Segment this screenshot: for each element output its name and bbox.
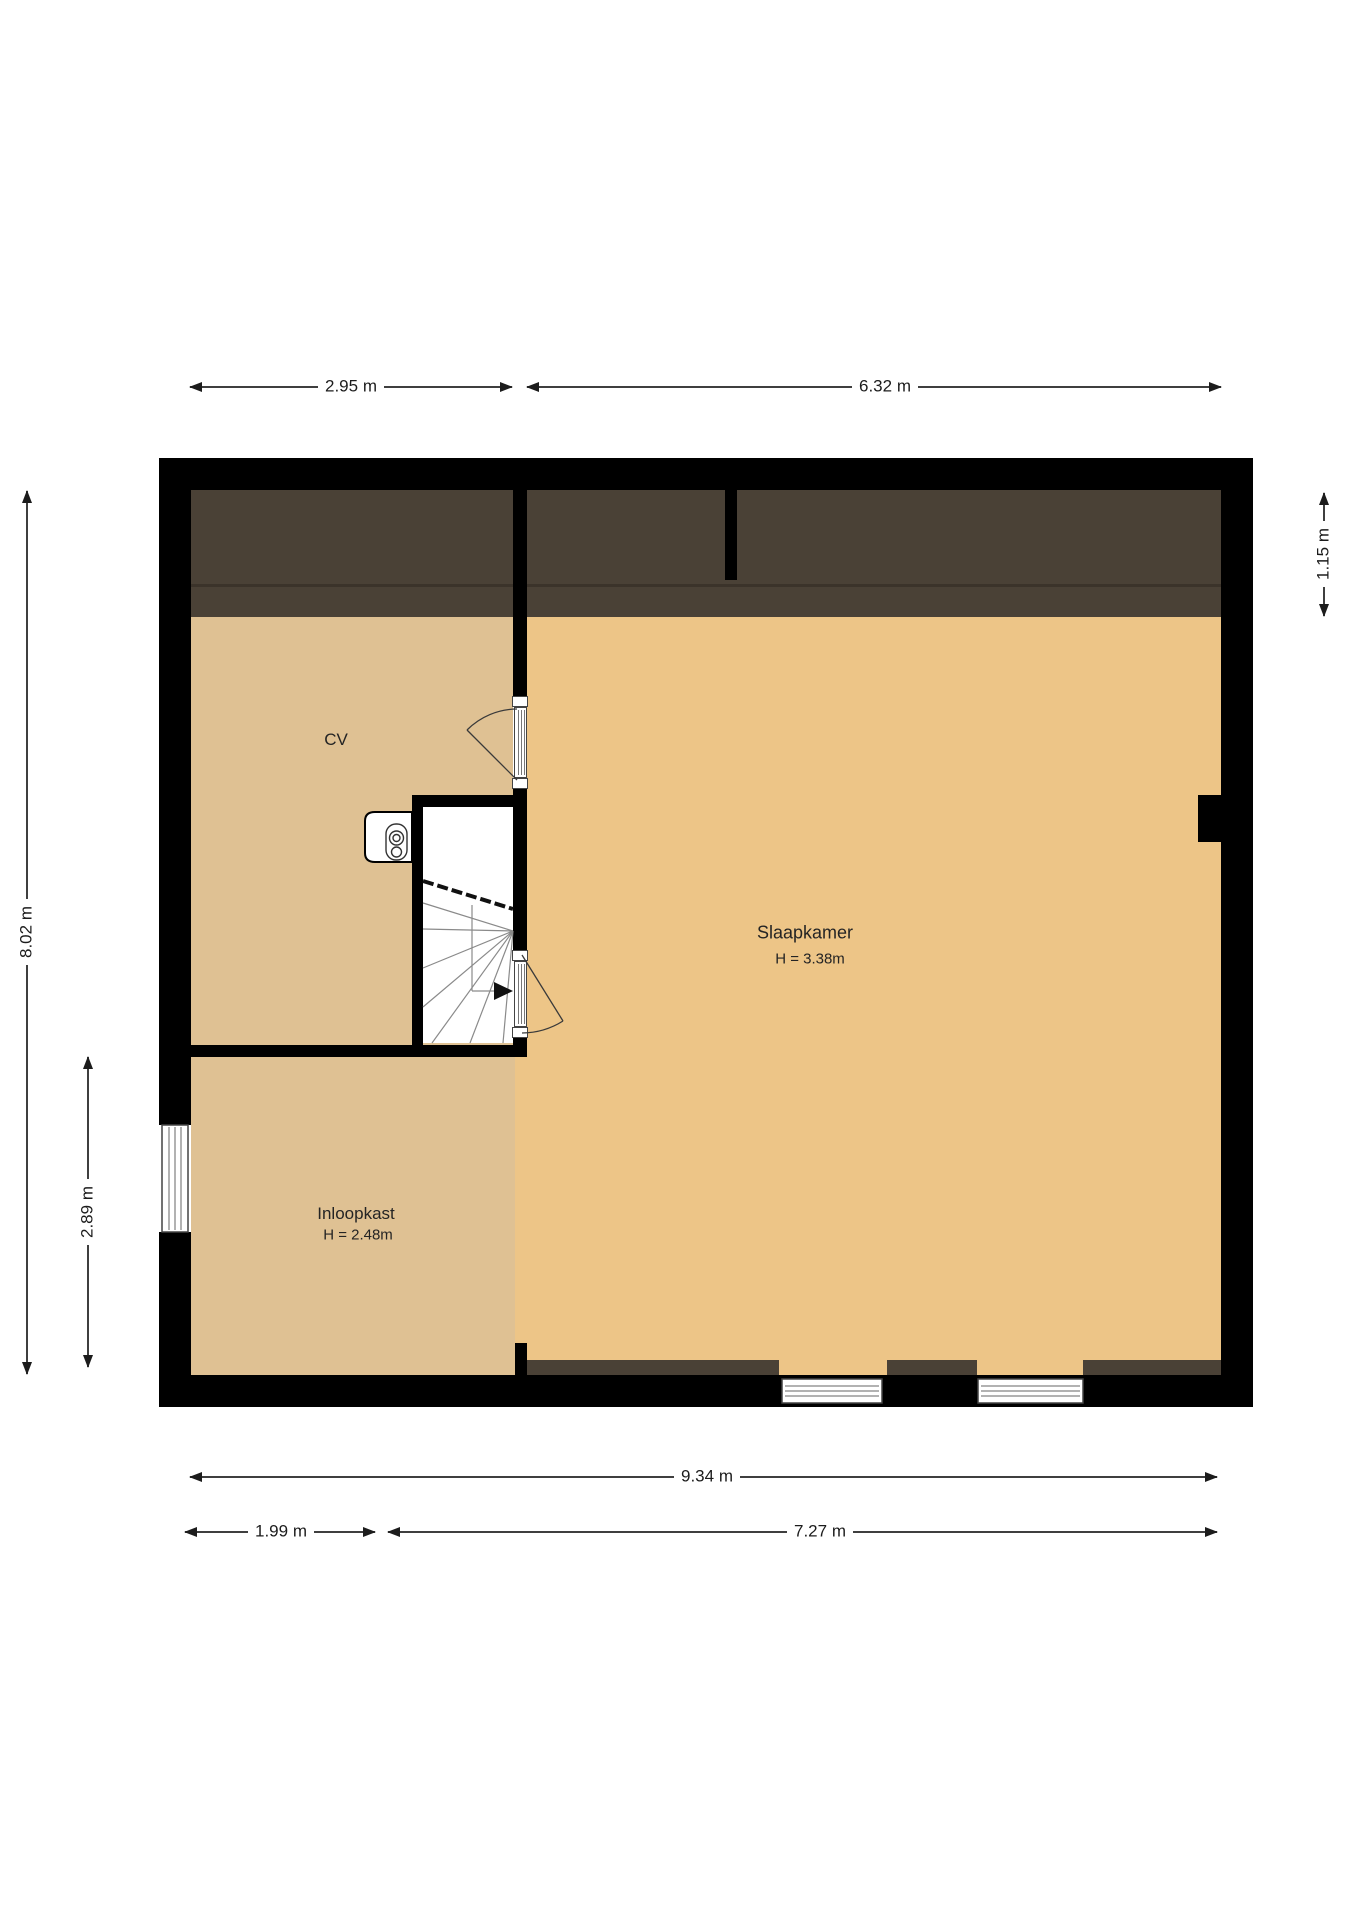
dim-bottom-left: 1.99 m	[248, 1523, 314, 1542]
stairs-direction-arrow	[494, 982, 513, 1000]
window-bottom-2	[978, 1379, 1083, 1403]
dim-bottom-right: 7.27 m	[787, 1523, 853, 1542]
room-label-inloopkast: Inloopkast	[317, 1204, 395, 1224]
room-label-cv: CV	[324, 730, 348, 750]
door-swing-cv	[467, 709, 517, 780]
dim-right: 1.15 m	[1315, 521, 1334, 587]
dim-bottom-total: 9.34 m	[674, 1468, 740, 1487]
window-bottom-1	[782, 1379, 882, 1403]
floor-plan: 2.95 m 6.32 m 1.15 m 8.02 m 2.89 m 9.34 …	[0, 0, 1358, 1920]
dim-top-left: 2.95 m	[318, 378, 384, 397]
door-swing-stair	[522, 955, 563, 1033]
dimension-lines	[27, 387, 1324, 1532]
window-left	[162, 1125, 188, 1232]
room-height-inloopkast: H = 2.48m	[323, 1227, 393, 1244]
dim-left-inner: 2.89 m	[79, 1179, 98, 1245]
room-label-slaapkamer: Slaapkamer	[757, 923, 853, 944]
dim-left-outer: 8.02 m	[18, 899, 37, 965]
dim-top-right: 6.32 m	[852, 378, 918, 397]
boiler-icon	[365, 812, 412, 862]
room-height-slaapkamer: H = 3.38m	[775, 951, 845, 968]
plan-linework	[0, 0, 1358, 1920]
stairs-icon	[423, 881, 513, 1043]
